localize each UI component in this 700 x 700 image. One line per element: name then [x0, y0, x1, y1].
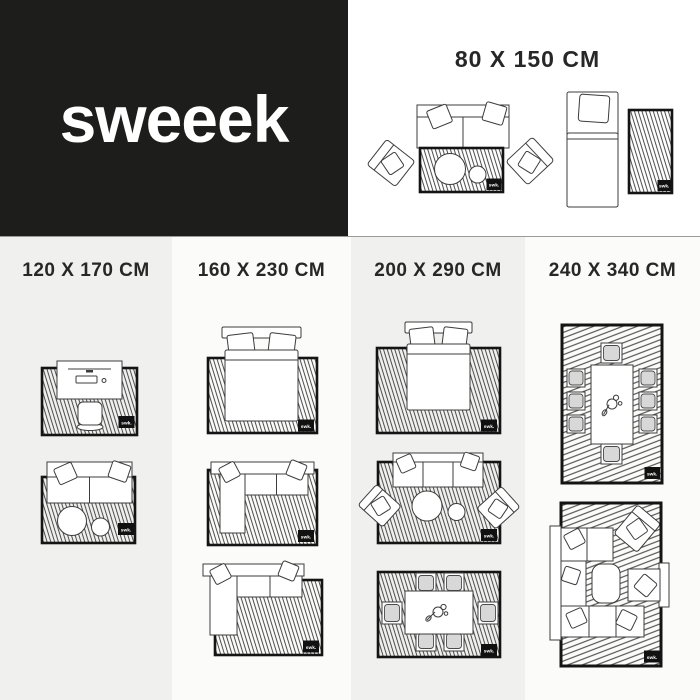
coffee-table-small: [469, 166, 486, 183]
diagram-dining-eight-chairs-on-rug: swk.: [552, 318, 672, 490]
swk-badge: swk.: [644, 651, 660, 663]
swk-badge: swk.: [303, 641, 319, 653]
coffee-table-large: [435, 154, 466, 185]
coffee-table: [592, 564, 620, 603]
coffee-table-small: [448, 504, 465, 521]
swk-badge: swk.: [658, 180, 672, 191]
svg-text:swk.: swk.: [301, 424, 311, 430]
svg-text:swk.: swk.: [301, 534, 311, 540]
svg-text:swk.: swk.: [484, 648, 494, 654]
rug-size-guide-infographic: sweeek 80 X 150 CM swk.: [0, 0, 700, 700]
desk-chair: [77, 402, 103, 431]
brand-panel: sweeek: [0, 0, 348, 237]
svg-text:swk.: swk.: [306, 645, 316, 651]
diagram-bed-bedside-80x150: swk.: [555, 85, 685, 215]
svg-text:swk.: swk.: [489, 183, 499, 189]
armchair-left: [367, 139, 415, 186]
svg-text:swk.: swk.: [647, 655, 657, 661]
swk-badge: swk.: [487, 179, 502, 191]
sofa: [393, 452, 483, 487]
diagram-living-set-80x150: swk.: [352, 85, 558, 198]
coffee-table-large: [58, 507, 87, 536]
svg-text:swk.: swk.: [121, 420, 131, 426]
diagram-desk-on-rug: swk.: [35, 355, 145, 440]
sofa: [417, 101, 509, 148]
brand-logo: sweeek: [60, 86, 289, 152]
diagram-double-bed-on-rug: swk.: [200, 320, 325, 440]
diagram-double-bed-on-large-rug: swk.: [370, 315, 510, 440]
sofa: [47, 460, 132, 503]
swk-badge: swk.: [481, 529, 497, 541]
size-heading-160x230: 160 X 230 CM: [172, 260, 351, 282]
dining-table: [405, 591, 473, 634]
swk-badge: swk.: [118, 523, 134, 535]
swk-badge: swk.: [645, 467, 661, 479]
size-heading-120x170: 120 X 170 CM: [0, 260, 172, 282]
dining-table: [591, 365, 633, 444]
armchair-right: [506, 137, 554, 185]
coffee-table-large: [412, 491, 442, 521]
single-bed: [567, 92, 618, 207]
diagram-dining-six-chairs-on-rug: swk.: [370, 565, 510, 662]
diagram-corner-sofa-partially-on-rug: swk.: [196, 556, 330, 662]
swk-badge: swk.: [481, 420, 497, 432]
double-bed: [222, 327, 301, 421]
swk-badge: swk.: [481, 644, 497, 656]
swk-badge: swk.: [298, 530, 314, 542]
double-bed: [405, 322, 472, 410]
coffee-table-small: [92, 518, 110, 536]
svg-text:swk.: swk.: [484, 424, 494, 430]
diagram-large-sofa-set-on-rug: swk.: [543, 493, 675, 672]
svg-text:swk.: swk.: [647, 471, 657, 477]
swk-badge: swk.: [298, 420, 314, 432]
swk-badge: swk.: [119, 416, 135, 428]
diagram-sofa-armchairs-on-rug: swk.: [363, 448, 511, 548]
diagram-corner-sofa-on-rug: swk.: [200, 455, 325, 550]
desk: [57, 361, 122, 399]
size-heading-240x340: 240 X 340 CM: [525, 260, 700, 282]
size-heading-200x290: 200 X 290 CM: [351, 260, 525, 282]
svg-text:swk.: swk.: [121, 527, 131, 533]
diagram-two-seat-sofa-on-rug: swk.: [35, 455, 145, 550]
hero-size-heading: 80 X 150 CM: [355, 46, 700, 73]
side-chair-right: [628, 563, 669, 607]
svg-text:swk.: swk.: [484, 533, 494, 539]
svg-text:swk.: swk.: [659, 184, 669, 190]
